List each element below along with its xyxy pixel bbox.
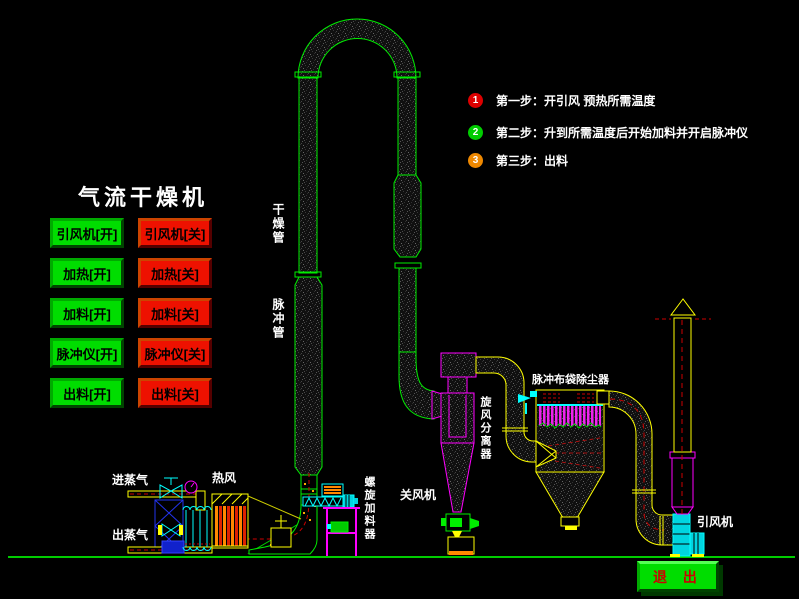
radiator: [212, 494, 248, 548]
output-off-button[interactable]: 出料[关]: [138, 378, 212, 408]
heat-off-button[interactable]: 加热[关]: [138, 258, 212, 288]
step-3-badge: 3: [468, 153, 483, 168]
main-duct: [295, 19, 434, 475]
heat-on-button[interactable]: 加热[开]: [50, 258, 124, 288]
exit-button[interactable]: 退 出: [637, 561, 719, 592]
label-bag-filter: 脉冲布袋除尘器: [532, 371, 609, 387]
label-cyclone: 旋风分离器: [477, 396, 493, 461]
hmi-screen: 气流干燥机 引风机[开] 加热[开] 加料[开] 脉冲仪[开] 出料[开] 引风…: [0, 0, 799, 599]
step-3: 3 第三步：出料: [468, 152, 568, 169]
step-2-text: 第二步：升到所需温度后开始加料并开启脉冲仪: [496, 124, 748, 141]
chimney: [655, 299, 711, 514]
label-screw-feeder: 螺旋加料器: [361, 476, 377, 541]
feed-on-button[interactable]: 加料[开]: [50, 298, 124, 328]
fan-off-button[interactable]: 引风机[关]: [138, 218, 212, 248]
label-steam-out: 出蒸气: [112, 526, 148, 543]
label-draft-fan: 引风机: [697, 513, 733, 530]
steam-heater: [128, 478, 301, 553]
output-on-button[interactable]: 出料[开]: [50, 378, 124, 408]
filter-outlet-pipe: [609, 391, 673, 545]
step-1: 1 第一步：开引风 预热所需温度: [468, 92, 655, 109]
label-pulse-pipe: 脉冲管: [270, 298, 287, 340]
page-title: 气流干燥机: [78, 180, 208, 212]
label-drying-pipe: 干燥管: [270, 203, 287, 245]
damper: [271, 515, 291, 547]
step-2: 2 第二步：升到所需温度后开始加料并开启脉冲仪: [468, 124, 748, 141]
pulse-off-button[interactable]: 脉冲仪[关]: [138, 338, 212, 368]
label-hot-air: 热风: [212, 469, 236, 486]
step-1-badge: 1: [468, 93, 483, 108]
label-steam-in: 进蒸气: [112, 471, 148, 488]
pulse-on-button[interactable]: 脉冲仪[开]: [50, 338, 124, 368]
rotary-valve: [441, 514, 479, 555]
cyclone-separator: [432, 353, 476, 512]
step-3-text: 第三步：出料: [496, 152, 568, 169]
fan-on-button[interactable]: 引风机[开]: [50, 218, 124, 248]
stand-motor: [331, 522, 348, 532]
feed-off-button[interactable]: 加料[关]: [138, 298, 212, 328]
step-1-text: 第一步：开引风 预热所需温度: [496, 92, 655, 109]
step-2-badge: 2: [468, 125, 483, 140]
label-rotary-valve: 关风机: [400, 486, 436, 503]
pump-box: [162, 541, 184, 553]
